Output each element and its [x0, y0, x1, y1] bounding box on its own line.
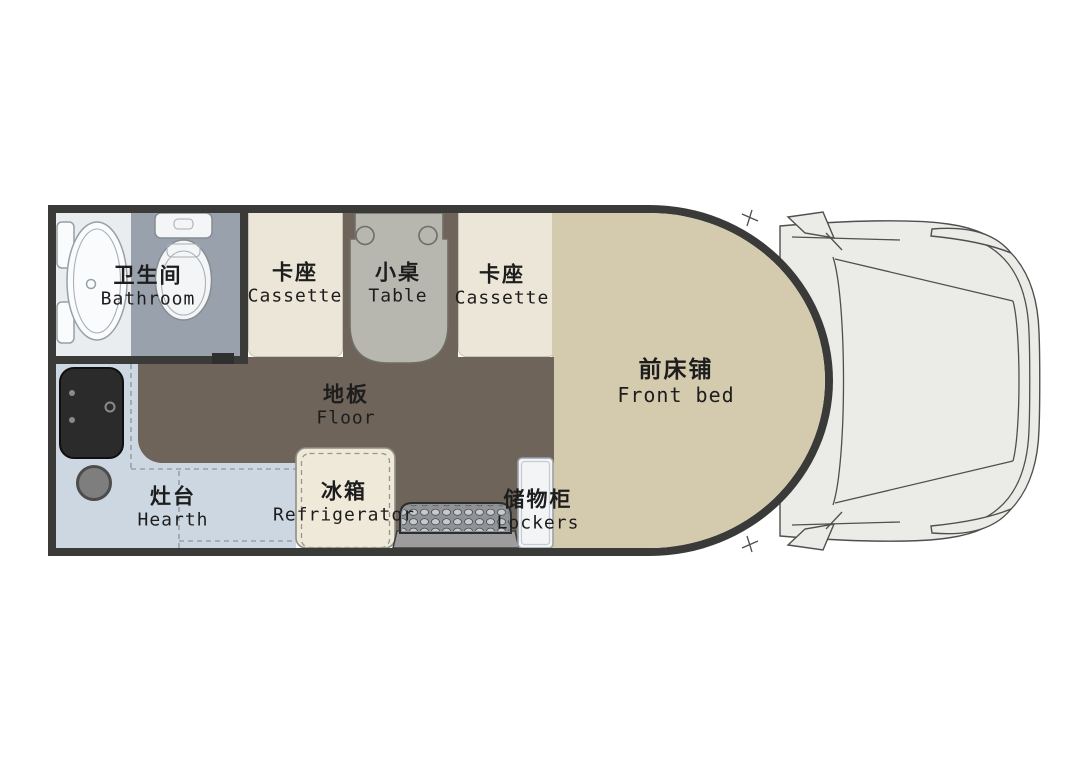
stove-knob-1 — [69, 390, 75, 396]
habitat-interior: 卫生间 Bathroom 卡座 Cassette 小桌 Table 卡座 Cas… — [56, 213, 825, 548]
label-refrigerator-zh: 冰箱 — [321, 480, 367, 505]
label-bathroom: 卫生间 Bathroom — [101, 264, 196, 311]
label-floor: 地板 Floor — [316, 383, 375, 430]
stove-knob-2 — [69, 417, 75, 423]
label-lockers-zh: 储物柜 — [503, 488, 572, 513]
label-table-zh: 小桌 — [375, 261, 421, 286]
label-bathroom-zh: 卫生间 — [113, 264, 182, 289]
label-front-bed-zh: 前床铺 — [639, 356, 714, 383]
label-floor-zh: 地板 — [323, 383, 369, 408]
label-front-bed: 前床铺 Front bed — [617, 356, 734, 408]
label-hearth-en: Hearth — [137, 510, 208, 532]
label-cassette-right-zh: 卡座 — [479, 263, 525, 288]
label-bathroom-en: Bathroom — [101, 289, 196, 311]
toilet-tank — [155, 213, 212, 238]
label-cassette-right: 卡座 Cassette — [455, 263, 550, 310]
label-table-en: Table — [368, 286, 427, 308]
label-front-bed-en: Front bed — [617, 383, 734, 408]
label-cassette-right-en: Cassette — [455, 288, 550, 310]
label-cassette-left: 卡座 Cassette — [248, 261, 343, 308]
label-cassette-left-zh: 卡座 — [272, 261, 318, 286]
label-hearth: 灶台 Hearth — [137, 485, 208, 532]
label-refrigerator-en: Refrigerator — [273, 505, 415, 527]
label-cassette-left-en: Cassette — [248, 286, 343, 308]
label-refrigerator: 冰箱 Refrigerator — [273, 480, 415, 527]
habitat-outline-wall: 卫生间 Bathroom 卡座 Cassette 小桌 Table 卡座 Cas… — [48, 205, 833, 556]
label-lockers: 储物柜 Lockers — [497, 488, 580, 535]
toilet-step-block — [212, 353, 234, 364]
rv-floorplan-page: 卫生间 Bathroom 卡座 Cassette 小桌 Table 卡座 Cas… — [0, 0, 1080, 764]
label-hearth-zh: 灶台 — [150, 485, 196, 510]
shower-drain — [87, 280, 96, 289]
sink-basin — [78, 467, 111, 500]
entry-step-mat-dots — [402, 505, 509, 531]
label-floor-en: Floor — [316, 408, 375, 430]
label-table: 小桌 Table — [368, 261, 427, 308]
stove-top — [60, 368, 123, 458]
label-lockers-en: Lockers — [497, 513, 580, 535]
